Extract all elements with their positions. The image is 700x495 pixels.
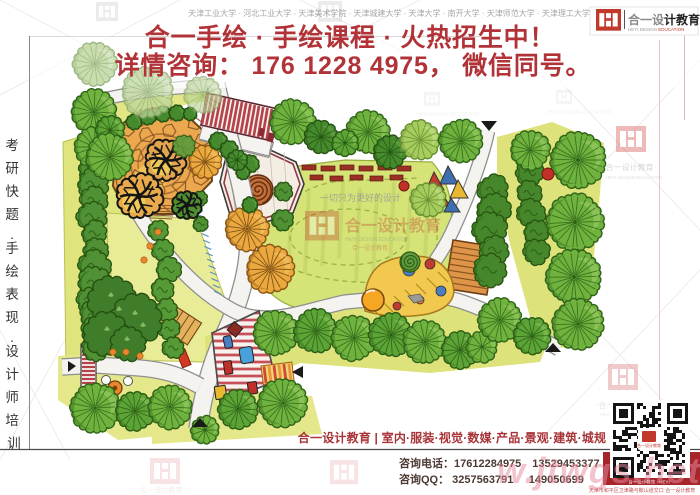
svg-text:w.jtwgs.het: w.jtwgs.het <box>497 450 700 491</box>
svg-text:HEYI DESIGN EDUCATION: HEYI DESIGN EDUCATION <box>606 175 662 180</box>
svg-text:HEYI DESIGN EDUCATION: HEYI DESIGN EDUCATION <box>345 237 408 243</box>
svg-text:合一设计教育: 合一设计教育 <box>345 216 441 235</box>
svg-text:HEYI DESIGN EDUCATION: HEYI DESIGN EDUCATION <box>548 110 611 116</box>
svg-text:·合一设计教育·: ·合一设计教育· <box>138 485 185 494</box>
svg-text:考 研 快 题 · 手 绘 表 现 · 设 计 师 培 训: 考 研 快 题 · 手 绘 表 现 · 设 计 师 培 训 <box>5 138 22 451</box>
svg-text:合一设计教育: 合一设计教育 <box>628 12 700 27</box>
svg-text:HEYI DESIGN EDUCATION: HEYI DESIGN EDUCATION <box>416 112 479 118</box>
svg-text:·合一设计教育·: ·合一设计教育· <box>603 162 656 172</box>
svg-text:合一手绘 · 手绘课程 · 火热招生中！: 合一手绘 · 手绘课程 · 火热招生中！ <box>145 23 555 52</box>
svg-text:HEYI DESIGN EDUCATION: HEYI DESIGN EDUCATION <box>628 27 684 32</box>
svg-text:详情咨询： 176 1228 4975， 微信同号。: 详情咨询： 176 1228 4975， 微信同号。 <box>115 51 592 80</box>
svg-text:·合一设计教育·: ·合一设计教育· <box>350 244 390 252</box>
svg-text:一切只为更好的设计: 一切只为更好的设计 <box>320 192 401 203</box>
svg-text:天津工业大学 · 河北工业大学 · 天津美术学院 · 天津城: 天津工业大学 · 河北工业大学 · 天津美术学院 · 天津城建大学 · 天津大学… <box>188 8 590 18</box>
svg-text:合一设计教育 | 室内·服装·视觉·数媒·产品·景观·建筑·: 合一设计教育 | 室内·服装·视觉·数媒·产品·景观·建筑·城规 <box>298 430 606 445</box>
svg-text:合一设计教育: 合一设计教育 <box>637 442 661 448</box>
